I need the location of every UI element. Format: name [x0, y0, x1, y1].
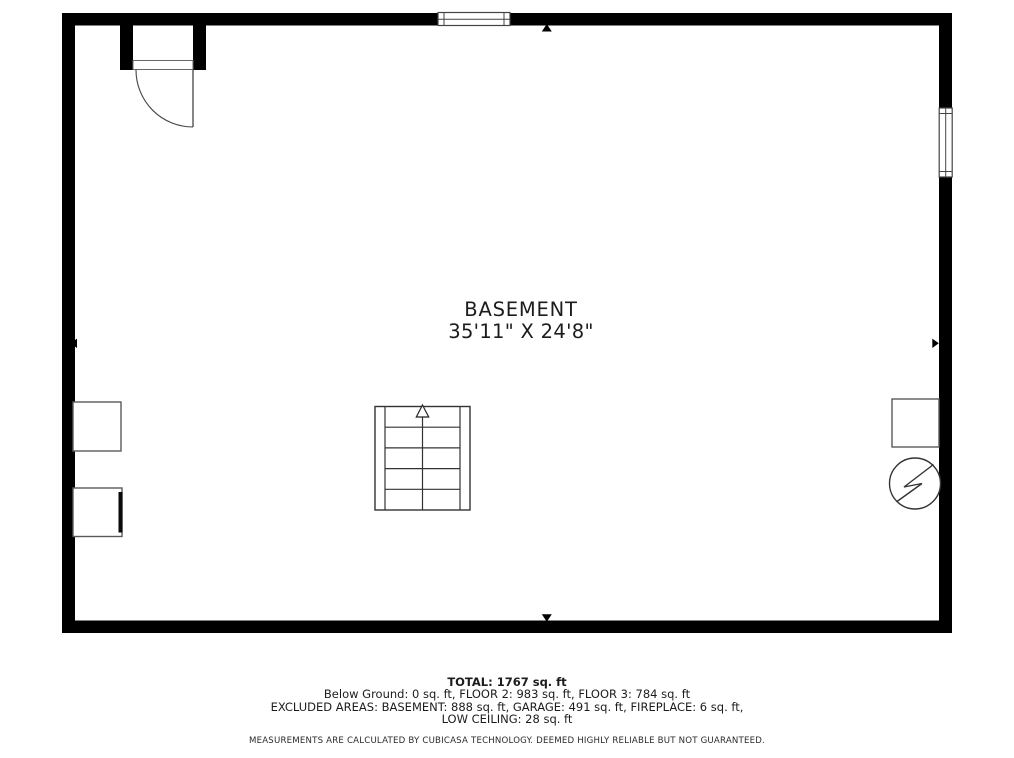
fixture-box-left-lower	[73, 488, 122, 537]
right-fixtures	[890, 399, 941, 509]
wall-left	[62, 13, 75, 633]
window-icon-right	[939, 108, 952, 177]
area-summary: TOTAL: 1767 sq. ft Below Ground: 0 sq. f…	[107, 676, 907, 747]
excluded-areas-line2: LOW CEILING: 28 sq. ft	[107, 713, 907, 725]
room-name: BASEMENT	[321, 299, 721, 321]
floor-plan-page: BASEMENT 35'11" X 24'8" TOTAL: 1767 sq. …	[0, 0, 1014, 758]
wall-right	[939, 13, 952, 633]
fixture-box-left-upper	[73, 402, 121, 451]
room-label-block: BASEMENT 35'11" X 24'8"	[321, 299, 721, 343]
floor-plan-svg	[0, 0, 1014, 758]
door-arc	[136, 70, 193, 127]
door-swing-icon	[136, 70, 193, 127]
disclaimer: MEASUREMENTS ARE CALCULATED BY CUBICASA …	[107, 735, 907, 747]
floor-breakdown: Below Ground: 0 sq. ft, FLOOR 2: 983 sq.…	[107, 688, 907, 700]
door-threshold	[133, 61, 193, 70]
wall-bottom	[62, 621, 952, 634]
alcove-wall-right	[193, 25, 206, 70]
right-arrow-icon	[932, 339, 939, 348]
window-icon-top	[438, 13, 510, 26]
left-fixtures	[73, 402, 122, 537]
alcove-wall-left	[120, 25, 133, 70]
door-alcove	[120, 25, 206, 70]
stairs-icon	[375, 405, 470, 510]
room-dimensions: 35'11" X 24'8"	[321, 321, 721, 343]
fixture-box-right	[892, 399, 939, 447]
water-heater-lightning-icon	[890, 458, 941, 509]
